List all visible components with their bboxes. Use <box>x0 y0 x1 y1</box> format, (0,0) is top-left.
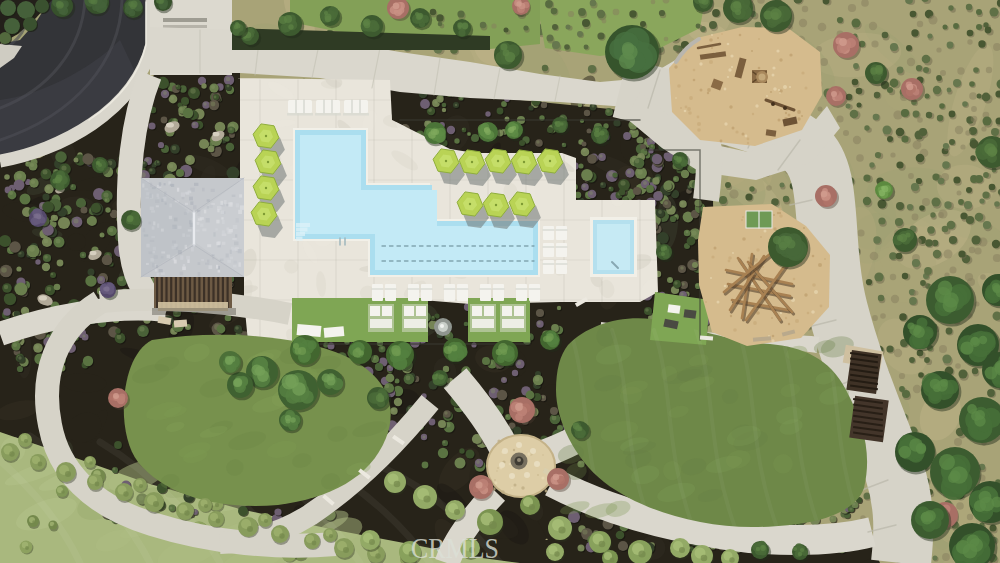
svg-text:CRMLS: CRMLS <box>411 532 499 563</box>
